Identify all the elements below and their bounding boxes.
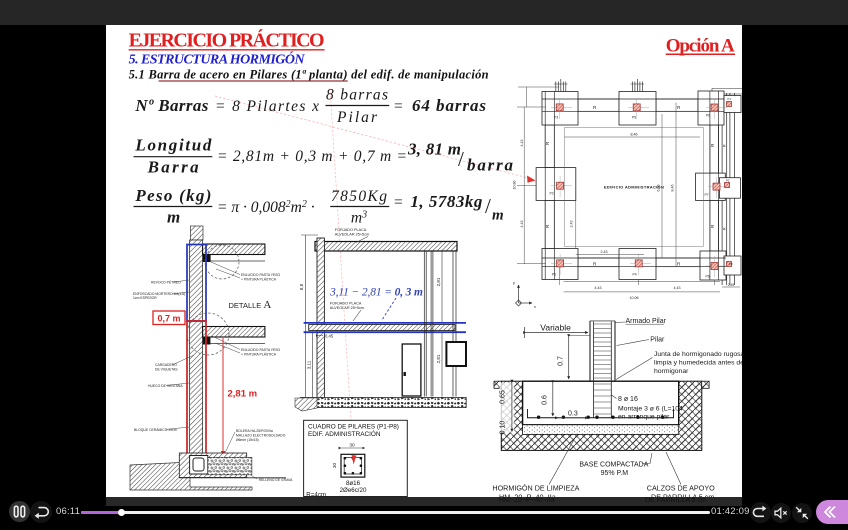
svg-text:y: y — [513, 280, 515, 285]
svg-text:x: x — [534, 304, 536, 309]
svg-text:8,8: 8,8 — [299, 283, 304, 290]
svg-text:2,43: 2,43 — [601, 250, 608, 254]
svg-text:FORJADO PLACA: FORJADO PLACA — [335, 228, 367, 232]
svg-text:0.7: 0.7 — [558, 356, 565, 366]
svg-text:= 8 Pilartes x: = 8 Pilartes x — [215, 98, 319, 115]
svg-text:P6: P6 — [706, 275, 710, 279]
svg-text:1, 5783kg: 1, 5783kg — [410, 192, 483, 211]
svg-text:2,43: 2,43 — [570, 221, 574, 228]
svg-text:P8: P8 — [706, 114, 710, 118]
svg-text:2Øe6c/20: 2Øe6c/20 — [340, 487, 367, 494]
svg-text:m: m — [167, 208, 180, 227]
svg-text:8 ø 16: 8 ø 16 — [618, 396, 638, 403]
svg-text:+ PINTURA PLÁSTICA: + PINTURA PLÁSTICA — [241, 278, 277, 282]
svg-text:Barra: Barra — [147, 158, 200, 177]
svg-text:ENLUCIDO PASTA YESO: ENLUCIDO PASTA YESO — [241, 273, 281, 277]
svg-text:6,86: 6,86 — [657, 185, 661, 192]
svg-text:MALLAZO ELECTROSOLDADO: MALLAZO ELECTROSOLDADO — [236, 434, 286, 438]
svg-text:P1: P1 — [552, 273, 556, 277]
svg-text:hormigonar: hormigonar — [654, 368, 689, 375]
svg-text:2,81: 2,81 — [436, 277, 441, 286]
svg-text:=: = — [394, 194, 403, 211]
svg-text:8ø16: 8ø16 — [346, 480, 361, 487]
svg-text:3, 81 m: 3, 81 m — [407, 140, 461, 159]
svg-text:R: R — [723, 144, 727, 147]
svg-text:BASE COMPACTADA: BASE COMPACTADA — [579, 462, 648, 469]
svg-text:+ PINTURA PLÁSTICA: + PINTURA PLÁSTICA — [241, 353, 277, 357]
svg-text:en arranque pilar: en arranque pilar — [618, 414, 670, 421]
svg-text:ENLUCIDO PASTA YESO: ENLUCIDO PASTA YESO — [241, 348, 281, 352]
svg-text:8,46: 8,46 — [631, 133, 638, 137]
svg-text:/: / — [458, 147, 464, 171]
svg-text:Pilar: Pilar — [336, 109, 378, 126]
svg-text:10,86: 10,86 — [513, 181, 517, 190]
svg-text:limpia y humedecida antes de: limpia y humedecida antes de — [654, 360, 742, 367]
svg-text:Peso (kg): Peso (kg) — [134, 186, 211, 205]
svg-text:30: 30 — [349, 443, 355, 449]
svg-text:P4: P4 — [633, 273, 637, 277]
svg-text:Montaje 3 ø 6 (L=104: Montaje 3 ø 6 (L=104 — [618, 405, 683, 412]
svg-text:P3: P3 — [554, 116, 558, 120]
svg-text:Longitud: Longitud — [134, 136, 212, 155]
svg-text:8 barras: 8 barras — [326, 87, 388, 104]
svg-text:64 barras: 64 barras — [412, 96, 486, 115]
svg-text:Pilar: Pilar — [650, 337, 665, 344]
svg-text:REVOCO PÉTREO: REVOCO PÉTREO — [151, 280, 181, 285]
svg-text:m: m — [492, 208, 504, 224]
svg-text:Junta de hormigonado rugosa,: Junta de hormigonado rugosa, — [654, 351, 742, 358]
svg-text:3,11: 3,11 — [307, 360, 312, 369]
svg-text:1cm ESPESOR: 1cm ESPESOR — [133, 296, 157, 300]
svg-text:HUECO DE VENTANA: HUECO DE VENTANA — [148, 384, 183, 388]
svg-text:95% P.M: 95% P.M — [601, 470, 629, 477]
svg-text:/: / — [485, 194, 491, 218]
svg-text:4,43: 4,43 — [520, 140, 524, 147]
svg-text:=: = — [394, 98, 403, 115]
svg-text:0,7 m: 0,7 m — [157, 314, 180, 324]
svg-text:30: 30 — [332, 463, 338, 469]
svg-text:barra: barra — [467, 156, 514, 175]
svg-text:4,43: 4,43 — [520, 221, 524, 228]
svg-text:Armado Pilar: Armado Pilar — [626, 318, 667, 325]
svg-text:5. ESTRUCTURA HORMIGÓN: 5. ESTRUCTURA HORMIGÓN — [129, 51, 306, 68]
svg-text:P1': P1' — [726, 179, 730, 183]
svg-text:4,43: 4,43 — [595, 286, 602, 290]
svg-text:EDIFICIO ADMINISTRACIÓN: EDIFICIO ADMINISTRACIÓN — [604, 185, 664, 190]
svg-text:0.65: 0.65 — [500, 390, 507, 404]
svg-text:0,45: 0,45 — [325, 334, 334, 339]
svg-text:0.6: 0.6 — [542, 395, 549, 405]
svg-text:2,81: 2,81 — [436, 354, 441, 363]
svg-text:DE VIGUETAS: DE VIGUETAS — [155, 368, 178, 372]
svg-text:= 2,81m + 0,3 m + 0,7 m =: = 2,81m + 0,3 m + 0,7 m = — [217, 148, 407, 165]
svg-text:7850Kg: 7850Kg — [331, 188, 387, 205]
svg-text:m3: m3 — [351, 210, 367, 227]
svg-text:CALZOS DE APOYO: CALZOS DE APOYO — [647, 484, 715, 493]
svg-text:ALVEOLAR 25+5cm: ALVEOLAR 25+5cm — [335, 233, 369, 237]
svg-text:P1': P1' — [728, 97, 732, 101]
svg-text:EJERCICIO PRÁCTICO: EJERCICIO PRÁCTICO — [129, 29, 325, 52]
svg-text:ALVEOLAR 25+5cm: ALVEOLAR 25+5cm — [330, 306, 364, 310]
svg-text:4,43: 4,43 — [674, 286, 681, 290]
svg-text:P7: P7 — [705, 193, 709, 197]
svg-text:2,81 m: 2,81 m — [228, 389, 258, 400]
svg-text:2,45: 2,45 — [728, 283, 734, 287]
svg-text:R: R — [723, 227, 727, 230]
svg-text:0.10: 0.10 — [500, 421, 507, 435]
svg-text:P2: P2 — [550, 192, 554, 196]
svg-text:FORJADO PLACA: FORJADO PLACA — [330, 302, 362, 306]
svg-text:8,46: 8,46 — [671, 185, 675, 192]
svg-text:RELLENO DE GRAVA: RELLENO DE GRAVA — [259, 478, 294, 482]
svg-text:CUADRO DE PILARES (P1-P8): CUADRO DE PILARES (P1-P8) — [308, 424, 399, 431]
svg-text:BOLERA HA-25/P/20/IIa: BOLERA HA-25/P/20/IIa — [236, 429, 273, 433]
svg-text:10,06: 10,06 — [630, 296, 639, 300]
svg-text:5.1 Barra de acero en Pilares: 5.1 Barra de acero en Pilares (1ª planta… — [129, 67, 489, 81]
svg-text:Nº Barras: Nº Barras — [134, 96, 208, 115]
svg-text:P9: P9 — [729, 262, 733, 266]
svg-text:HORMIGÓN DE LIMPIEZA: HORMIGÓN DE LIMPIEZA — [492, 484, 579, 493]
svg-text:CARGADERO: CARGADERO — [155, 363, 177, 367]
svg-text:Opción A: Opción A — [666, 36, 735, 57]
svg-text:= π · 0,0082m2 ·: = π · 0,0082m2 · — [217, 199, 315, 216]
svg-text:DETALLE A: DETALLE A — [229, 299, 272, 311]
svg-text:3,11 − 2,81 = 0, 3 m: 3,11 − 2,81 = 0, 3 m — [329, 287, 423, 299]
svg-text:0.3: 0.3 — [568, 410, 578, 417]
svg-text:Variable: Variable — [540, 323, 571, 333]
svg-text:BLOQUE CERÁMICO 19cm: BLOQUE CERÁMICO 19cm — [134, 428, 177, 432]
svg-text:Ø6mm (15x15): Ø6mm (15x15) — [236, 438, 259, 442]
svg-text:P5: P5 — [632, 116, 636, 120]
svg-text:EDIF. ADMINISTRACIÓN: EDIF. ADMINISTRACIÓN — [308, 429, 381, 438]
